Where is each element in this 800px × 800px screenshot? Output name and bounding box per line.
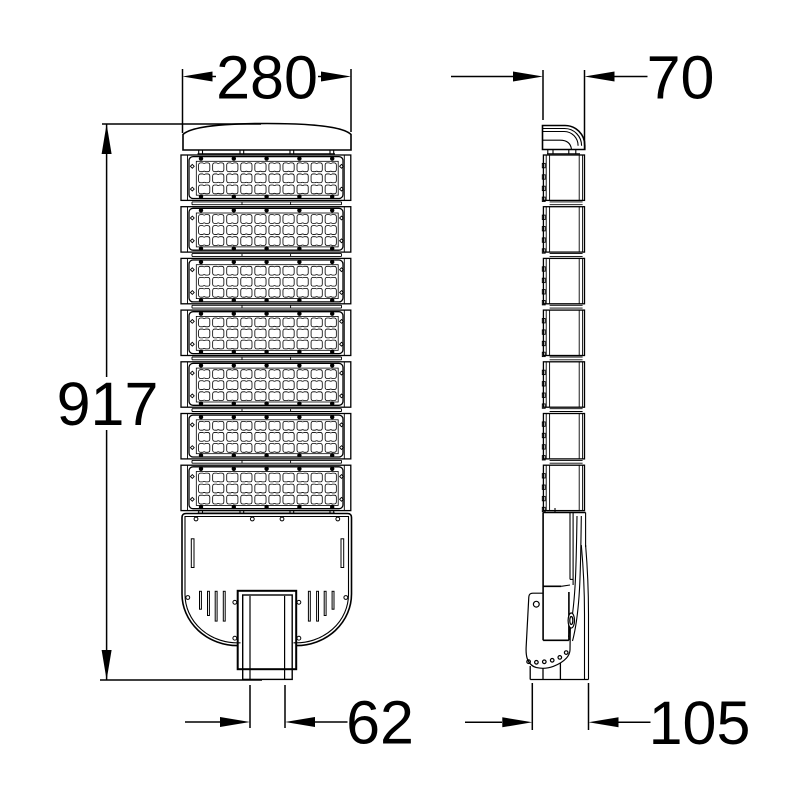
svg-text:62: 62 (346, 689, 414, 757)
svg-text:917: 917 (57, 370, 159, 438)
svg-text:280: 280 (216, 44, 318, 112)
svg-text:70: 70 (647, 44, 715, 112)
svg-text:105: 105 (649, 689, 751, 757)
